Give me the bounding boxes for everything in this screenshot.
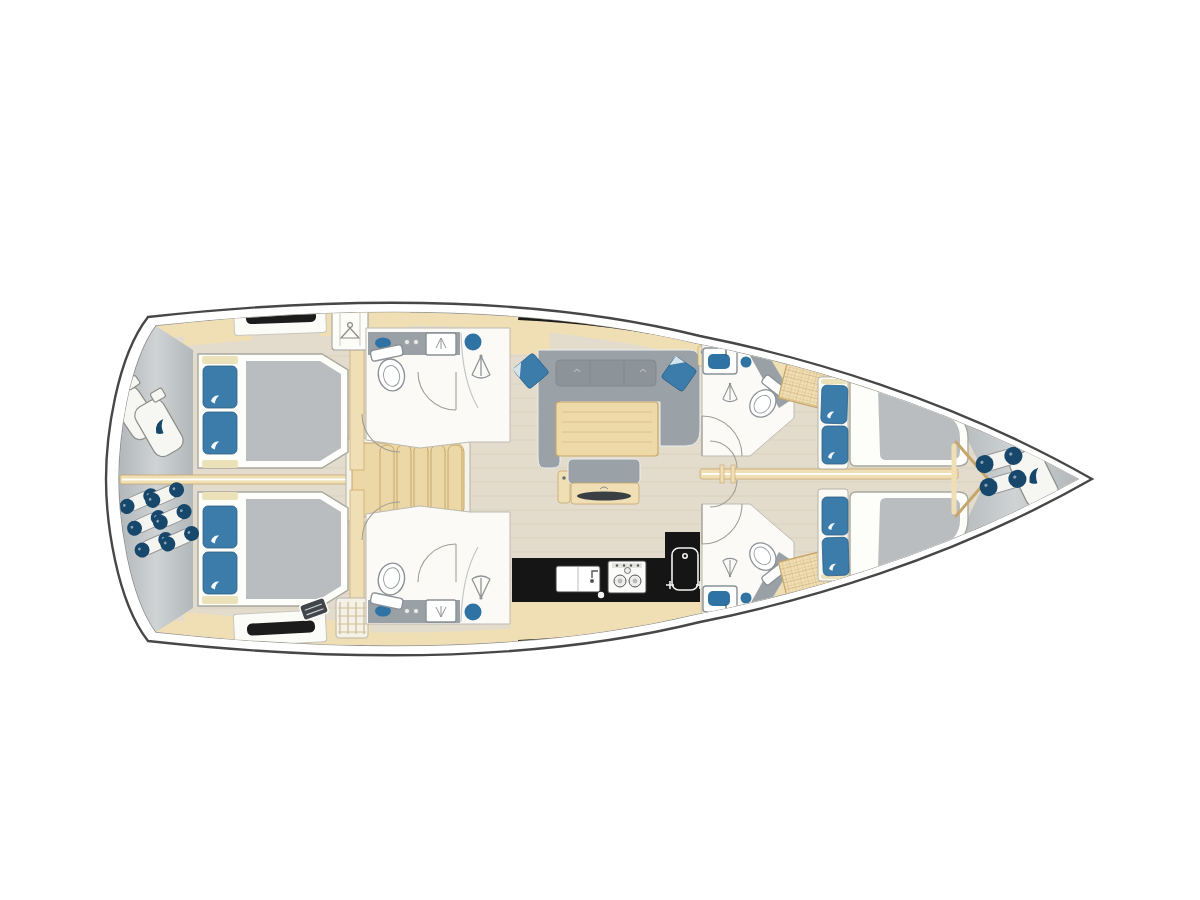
wardrobe-starboard [336, 598, 368, 638]
shower-drain [741, 357, 752, 368]
salon-bench [558, 459, 640, 504]
burner-icon [625, 568, 631, 574]
pillow [822, 497, 848, 535]
seat-cushions [556, 360, 656, 386]
shower-drain [465, 604, 482, 621]
pillow [821, 385, 848, 424]
pillow [203, 506, 237, 548]
aft-head-starboard [362, 502, 510, 624]
pillow [822, 537, 849, 576]
aft-cabin-port [198, 348, 364, 470]
aft-head-port [362, 328, 510, 452]
tray [577, 492, 631, 501]
shower-drain [741, 593, 752, 604]
yacht-floor-plan-page [0, 0, 1200, 900]
dining-table [556, 402, 658, 456]
stern-centerline-wall [120, 475, 352, 484]
aft-cabin-starboard [198, 490, 364, 612]
stove [608, 561, 646, 593]
basin [708, 354, 730, 369]
wardrobe-port [332, 308, 368, 350]
yacht-floor-plan [0, 0, 1200, 900]
pillow [203, 552, 237, 594]
pillow [203, 412, 237, 454]
bench-cushion [568, 459, 640, 484]
shower-drain [465, 334, 482, 351]
pillow [203, 366, 237, 408]
pillow [822, 426, 848, 464]
basin [708, 591, 730, 606]
